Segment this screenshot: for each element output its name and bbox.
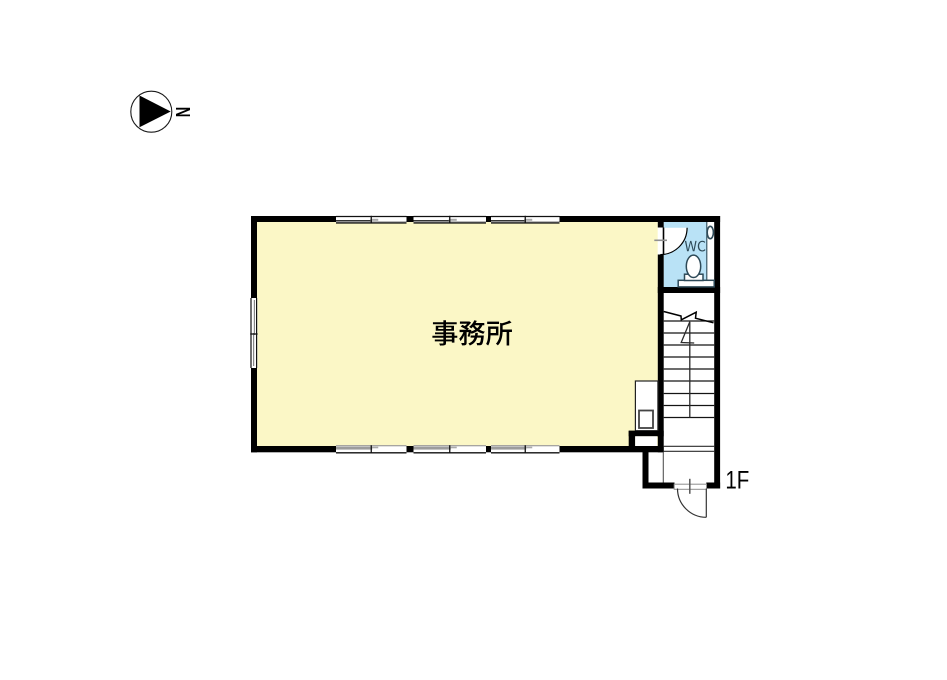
svg-text:N: N [171,107,194,118]
svg-text:1F: 1F [725,465,749,493]
